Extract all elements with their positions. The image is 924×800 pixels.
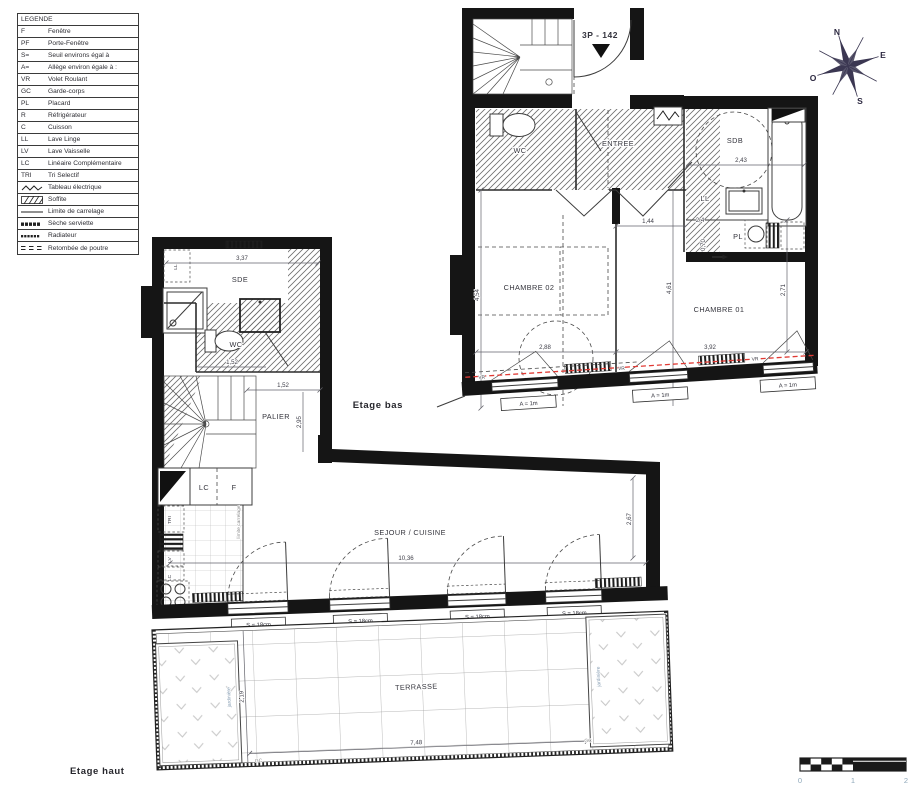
radiator bbox=[565, 362, 611, 374]
svg-text:3,37: 3,37 bbox=[236, 255, 248, 262]
svg-text:LC: LC bbox=[199, 483, 209, 492]
legend-item: RRéfrigérateur bbox=[18, 110, 138, 122]
towel-dryer bbox=[226, 241, 262, 248]
floor-plan-etage-bas: 3P - 142 bbox=[353, 8, 819, 413]
tile-limit-label: limite carrelage bbox=[236, 505, 242, 538]
legend-item: Limite de carrelage bbox=[18, 206, 138, 218]
entrance-arrow-icon bbox=[592, 44, 610, 58]
svg-text:A = 1m: A = 1m bbox=[779, 382, 798, 389]
compass-north-label: N bbox=[834, 27, 840, 37]
room-label-pl: PL bbox=[733, 232, 743, 241]
svg-text:3,92: 3,92 bbox=[704, 344, 716, 351]
legend-item: FFenêtre bbox=[18, 26, 138, 38]
svg-text:10,36: 10,36 bbox=[398, 555, 414, 562]
gc-label: GC bbox=[255, 758, 263, 764]
electrical-panel-icon bbox=[21, 184, 43, 192]
room-label-chambre-01: CHAMBRE 01 bbox=[694, 305, 745, 314]
floorplan-sheet: LEGENDE FFenêtre PFPorte-Fenêtre S=Seuil… bbox=[0, 0, 924, 800]
gc-label: GC bbox=[584, 738, 592, 744]
svg-text:jardinière: jardinière bbox=[226, 687, 233, 709]
room-label-sejour: SEJOUR / CUISINE bbox=[374, 528, 446, 537]
tile-limit-line-icon bbox=[21, 208, 43, 216]
legend-item: CCuisson bbox=[18, 122, 138, 134]
legend-item: LLLave Linge bbox=[18, 134, 138, 146]
svg-text:2,67: 2,67 bbox=[626, 512, 633, 524]
legend-item: VRVolet Roulant bbox=[18, 74, 138, 86]
ll-label-haut: LL bbox=[173, 264, 179, 270]
vr-label: VR bbox=[478, 375, 486, 381]
svg-text:A = 1m: A = 1m bbox=[651, 392, 670, 399]
terrace-depth-dim: 2,19 bbox=[238, 690, 245, 703]
svg-text:1,52: 1,52 bbox=[277, 382, 289, 389]
sdb-sink bbox=[726, 188, 762, 214]
legend-header: LEGENDE bbox=[18, 14, 138, 26]
svg-text:A = 1m: A = 1m bbox=[519, 401, 538, 408]
svg-text:2,43: 2,43 bbox=[735, 157, 747, 164]
planter-right: jardinière bbox=[586, 614, 671, 747]
svg-text:4,54: 4,54 bbox=[474, 288, 481, 300]
floor-plan-etage-haut: LL bbox=[70, 237, 673, 777]
towel-dryer-icon bbox=[21, 220, 43, 228]
svg-text:LC: LC bbox=[167, 574, 173, 581]
room-label-wc-bas: WC bbox=[514, 146, 527, 155]
room-label-wc-haut: WC bbox=[230, 340, 243, 349]
soffit-hatch-icon bbox=[21, 196, 43, 204]
toilet-bas bbox=[490, 114, 535, 137]
legend-item: LCLinéaire Complémentaire bbox=[18, 158, 138, 170]
floor-label-etage-bas: Etage bas bbox=[353, 400, 403, 411]
electrical-panel bbox=[654, 107, 682, 125]
compass-south-label: S bbox=[857, 96, 863, 106]
shower bbox=[163, 288, 207, 333]
svg-text:F: F bbox=[232, 483, 237, 492]
scale-bar: 0 1 2 bbox=[798, 758, 908, 785]
staircase-bas bbox=[473, 19, 574, 94]
radiator bbox=[192, 592, 242, 603]
legend-title: LEGENDE bbox=[21, 16, 53, 23]
room-label-entree: ENTREE bbox=[602, 139, 634, 148]
svg-text:TRI: TRI bbox=[167, 516, 173, 524]
water-heater bbox=[158, 468, 190, 505]
svg-text:2,4: 2,4 bbox=[696, 217, 705, 224]
legend-item: LVLave Vaisselle bbox=[18, 146, 138, 158]
beam-drop-icon bbox=[21, 244, 43, 252]
room-label-sdb: SDB bbox=[727, 136, 743, 145]
legend-item: GCGarde-corps bbox=[18, 86, 138, 98]
svg-text:0,70: 0,70 bbox=[700, 238, 707, 250]
svg-text:2,71: 2,71 bbox=[780, 283, 787, 295]
planter-left: jardinière bbox=[156, 641, 242, 766]
scale-tick-2: 2 bbox=[904, 776, 908, 785]
vr-label: VR bbox=[618, 366, 626, 372]
legend-item: Retombée de poutre bbox=[18, 242, 138, 254]
legend: LEGENDE FFenêtre PFPorte-Fenêtre S=Seuil… bbox=[17, 13, 139, 255]
legend-item: Tableau électrique bbox=[18, 182, 138, 194]
legend-item: Soffite bbox=[18, 194, 138, 206]
vr-label: VR bbox=[752, 356, 760, 362]
room-label-sde: SDE bbox=[232, 275, 248, 284]
legend-item: A=Allège environ égale à : bbox=[18, 62, 138, 74]
room-label-palier: PALIER bbox=[262, 412, 290, 421]
legend-item: Sèche serviette bbox=[18, 218, 138, 230]
compass-east-label: E bbox=[880, 50, 886, 60]
room-label-chambre-02: CHAMBRE 02 bbox=[504, 283, 555, 292]
svg-text:2,88: 2,88 bbox=[539, 344, 551, 351]
terrace: jardinière jardinière TERRASSE 7,48 2,19… bbox=[152, 611, 673, 770]
scale-tick-1: 1 bbox=[851, 776, 855, 785]
legend-item: Radiateur bbox=[18, 230, 138, 242]
legend-item: PLPlacard bbox=[18, 98, 138, 110]
terrace-width-dim: 7,48 bbox=[410, 739, 423, 746]
legend-item: S=Seuil environs égal à bbox=[18, 50, 138, 62]
soffit-hatch-sdb bbox=[686, 109, 720, 252]
svg-text:1,52: 1,52 bbox=[226, 359, 238, 366]
legend-item: TRITri Selectif bbox=[18, 170, 138, 182]
washbasin-unit bbox=[240, 299, 280, 332]
radiator bbox=[698, 353, 744, 365]
svg-text:1,44: 1,44 bbox=[642, 218, 654, 225]
room-label-terrasse: TERRASSE bbox=[395, 682, 438, 693]
floor-label-etage-haut: Etage haut bbox=[70, 766, 125, 777]
legend-item: PFPorte-Fenêtre bbox=[18, 38, 138, 50]
svg-text:4,61: 4,61 bbox=[666, 281, 673, 293]
unit-number-label: 3P - 142 bbox=[582, 30, 618, 40]
closet-lc-f: LC F bbox=[190, 468, 252, 505]
scale-tick-0: 0 bbox=[798, 776, 802, 785]
room-label-ll-bas: LL bbox=[701, 194, 710, 203]
bas-window-wall: VR VR VR A = 1m A = 1m A = 1m bbox=[460, 330, 819, 413]
bathtub bbox=[768, 108, 806, 226]
radiator bbox=[595, 577, 641, 588]
compass-west-label: O bbox=[810, 73, 817, 83]
svg-text:jardinière: jardinière bbox=[596, 666, 603, 688]
staircase-haut bbox=[164, 376, 256, 468]
radiator-icon bbox=[21, 232, 43, 240]
svg-text:2,95: 2,95 bbox=[296, 415, 303, 427]
svg-text:LV: LV bbox=[167, 556, 173, 562]
compass-rose-icon bbox=[808, 26, 888, 106]
